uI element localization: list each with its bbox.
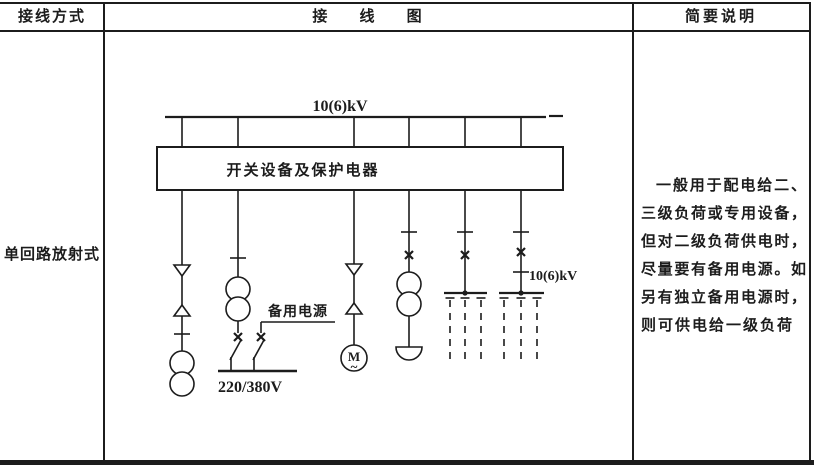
backup-power-label: 备用电源 [267, 303, 328, 319]
switchgear-box: 开关设备及保护电器 [157, 147, 563, 190]
transformer-icon [397, 272, 421, 316]
junction-dot [518, 290, 523, 295]
switchgear-label: 开关设备及保护电器 [226, 161, 379, 179]
wiring-diagram: 10(6)kV 开关设备及保护电器 [0, 0, 814, 467]
lv-voltage-label: 220/380V [218, 379, 282, 396]
transformer-winding [170, 372, 194, 396]
feeder-distribution-branch-hv: 10(6)kV [499, 190, 577, 360]
junction-dot [462, 290, 467, 295]
feeder-backup-branch: 备用电源 220/380V [218, 190, 335, 396]
feeder-transformer-branch [170, 190, 194, 396]
feeder-distribution-branch [444, 190, 487, 360]
knife-switch-icon [253, 322, 265, 371]
dashed-outgoing-line [446, 298, 455, 360]
dashed-outgoing-line [461, 298, 470, 360]
dropout-fuse-up-icon [346, 303, 362, 314]
transformer-winding [226, 297, 250, 321]
transformer-winding [397, 292, 421, 316]
load-semicircle-icon [396, 347, 422, 360]
dashed-outgoing-line [517, 298, 526, 360]
switch-cross [257, 333, 265, 341]
wiring-handbook-table: 接线方式 接 线 图 简要说明 单回路放射式 一般用于配电给二、 三级负荷或专用… [0, 0, 814, 467]
bus-voltage-label: 10(6)kV [312, 98, 368, 115]
motor-icon: M ~ [341, 345, 367, 374]
dashed-outgoing-line [500, 298, 509, 360]
dropout-fuse-down-icon [346, 264, 362, 275]
dropout-fuse-down-icon [174, 265, 190, 276]
knife-switch-icon [230, 333, 242, 371]
motor-wave: ~ [351, 359, 358, 374]
hv-busbar: 10(6)kV [165, 98, 563, 147]
branch-voltage-label: 10(6)kV [529, 269, 577, 284]
transformer-icon [226, 277, 250, 321]
dropout-fuse-up-icon [174, 305, 190, 316]
transformer-icon [170, 351, 194, 396]
dashed-outgoing-line [477, 298, 486, 360]
dashed-outgoing-line [533, 298, 542, 360]
feeder-transformer-load-branch [396, 190, 422, 360]
switch-cross [234, 333, 242, 341]
feeder-motor-branch: M ~ [341, 190, 367, 374]
